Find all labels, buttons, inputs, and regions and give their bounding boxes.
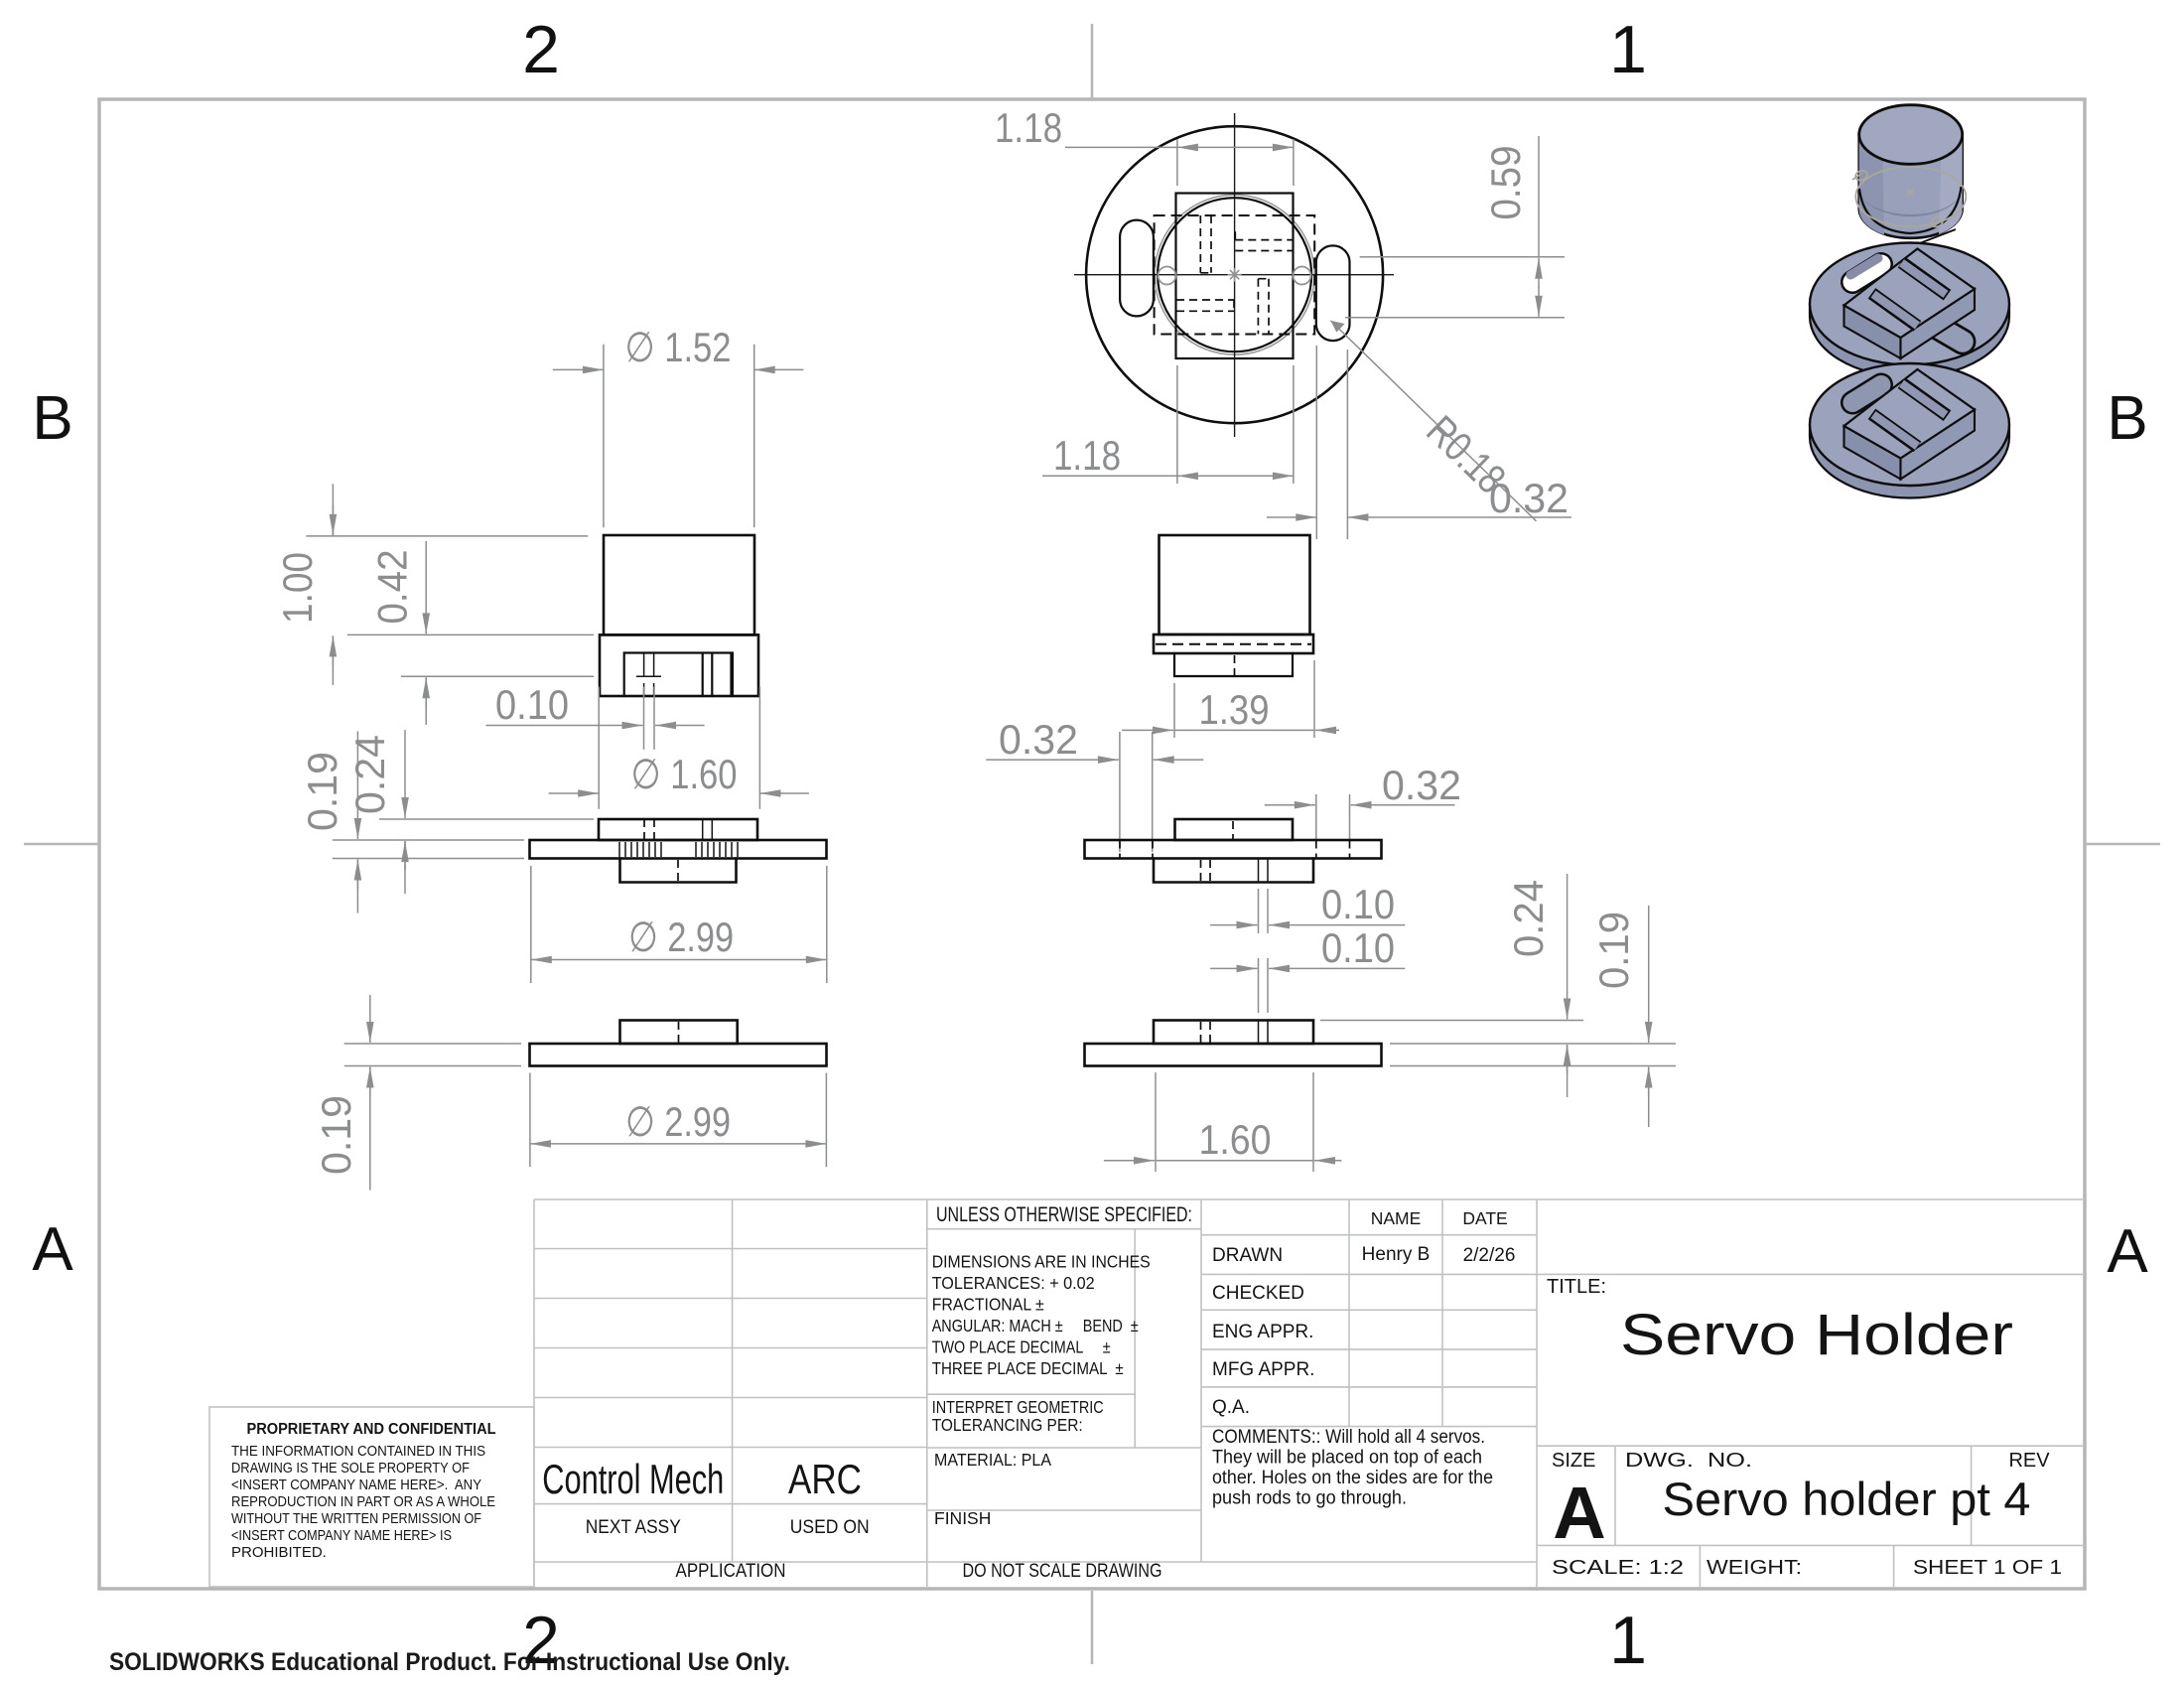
svg-text:0.10: 0.10 [1321,881,1395,927]
svg-text:COMMENTS:: Will hold all 4 ser: COMMENTS:: Will hold all 4 servos. [1212,1427,1485,1448]
svg-text:0.24: 0.24 [346,735,393,814]
svg-text:SHEET 1 OF 1: SHEET 1 OF 1 [1913,1557,2062,1579]
svg-text:MATERIAL: PLA: MATERIAL: PLA [934,1450,1051,1470]
svg-text:INTERPRET GEOMETRIC: INTERPRET GEOMETRIC [932,1397,1104,1417]
svg-text:NAME: NAME [1371,1208,1422,1228]
svg-text:1.60: 1.60 [1199,1116,1272,1163]
svg-text:WITHOUT THE WRITTEN PERMISSION: WITHOUT THE WRITTEN PERMISSION OF [231,1510,481,1527]
svg-text:A: A [32,1215,73,1284]
svg-text:Control Mech: Control Mech [542,1456,724,1502]
svg-text:TITLE:: TITLE: [1547,1276,1606,1298]
svg-text:DO NOT SCALE DRAWING: DO NOT SCALE DRAWING [963,1561,1162,1582]
svg-text:0.24: 0.24 [1505,880,1552,957]
svg-text:DRAWN: DRAWN [1212,1245,1283,1266]
svg-text:REV: REV [2008,1450,2050,1472]
svg-text:Henry B: Henry B [1362,1244,1431,1265]
svg-text:CHECKED: CHECKED [1212,1283,1304,1304]
svg-text:1: 1 [1609,12,1647,87]
svg-text:<INSERT COMPANY NAME HERE> IS: <INSERT COMPANY NAME HERE> IS [231,1527,452,1544]
svg-text:MFG APPR.: MFG APPR. [1212,1359,1314,1380]
svg-text:A: A [2107,1217,2148,1286]
svg-text:0.32: 0.32 [1382,762,1461,808]
svg-text:ARC: ARC [788,1456,862,1502]
svg-text:ENG APPR.: ENG APPR. [1212,1322,1313,1342]
svg-text:PROHIBITED.: PROHIBITED. [231,1544,327,1561]
svg-text:∅ 1.52: ∅ 1.52 [625,324,732,370]
svg-text:0.19: 0.19 [313,1095,359,1175]
svg-text:PROPRIETARY AND CONFIDENTIAL: PROPRIETARY AND CONFIDENTIAL [247,1421,496,1438]
svg-text:WEIGHT:: WEIGHT: [1706,1557,1802,1579]
svg-text:0.42: 0.42 [369,550,416,625]
svg-text:THREE PLACE DECIMAL ±: THREE PLACE DECIMAL ± [932,1358,1124,1378]
svg-text:1.00: 1.00 [274,552,321,624]
svg-text:Q.A.: Q.A. [1212,1397,1250,1418]
svg-text:1.18: 1.18 [995,104,1062,151]
svg-text:TOLERANCES: + 0.02: TOLERANCES: + 0.02 [932,1273,1095,1293]
svg-text:0.19: 0.19 [299,752,345,831]
svg-text:DRAWING IS THE SOLE PROPERTY O: DRAWING IS THE SOLE PROPERTY OF [231,1460,470,1477]
svg-text:Servo holder pt 4: Servo holder pt 4 [1663,1473,2031,1525]
svg-text:USED ON: USED ON [790,1517,870,1538]
svg-text:SOLIDWORKS Educational Product: SOLIDWORKS Educational Product. For Inst… [109,1648,790,1676]
svg-text:push rods to go through.: push rods to go through. [1212,1488,1407,1509]
svg-text:0.59: 0.59 [1482,146,1529,220]
svg-text:DIMENSIONS ARE IN INCHES: DIMENSIONS ARE IN INCHES [932,1252,1151,1272]
svg-text:∅ 2.99: ∅ 2.99 [625,1098,731,1145]
svg-text:TOLERANCING PER:: TOLERANCING PER: [932,1415,1083,1435]
svg-text:FRACTIONAL ±: FRACTIONAL ± [932,1295,1044,1315]
svg-text:0.19: 0.19 [1590,912,1637,989]
svg-text:APPLICATION: APPLICATION [676,1561,786,1582]
svg-text:<INSERT COMPANY NAME HERE>. A: <INSERT COMPANY NAME HERE>. ANY [231,1477,481,1493]
svg-text:2/2/26: 2/2/26 [1463,1245,1516,1266]
svg-text:∅ 2.99: ∅ 2.99 [628,914,734,960]
svg-text:REPRODUCTION IN PART OR AS A W: REPRODUCTION IN PART OR AS A WHOLE [231,1493,495,1510]
svg-text:1.39: 1.39 [1199,686,1270,733]
svg-text:SIZE: SIZE [1552,1450,1595,1472]
svg-text:0.32: 0.32 [999,716,1078,763]
svg-text:TWO PLACE DECIMAL ±: TWO PLACE DECIMAL ± [932,1337,1111,1357]
svg-text:2: 2 [522,12,560,87]
svg-text:NEXT ASSY: NEXT ASSY [586,1517,681,1538]
svg-text:ANGULAR: MACH ± BEND ±: ANGULAR: MACH ± BEND ± [932,1316,1139,1336]
svg-text:DWG. NO.: DWG. NO. [1625,1450,1752,1472]
svg-text:UNLESS OTHERWISE SPECIFIED:: UNLESS OTHERWISE SPECIFIED: [936,1203,1192,1226]
svg-text:0.10: 0.10 [1321,924,1395,971]
svg-text:B: B [32,384,72,453]
svg-text:other. Holes on the sides are: other. Holes on the sides are for the [1212,1468,1493,1488]
svg-text:B: B [2107,384,2147,453]
svg-text:∅ 1.60: ∅ 1.60 [631,751,738,797]
svg-text:1: 1 [1609,1603,1647,1678]
svg-text:SCALE: 1:2: SCALE: 1:2 [1552,1557,1684,1579]
svg-text:DATE: DATE [1462,1208,1507,1228]
svg-text:A: A [1553,1472,1605,1554]
svg-text:FINISH: FINISH [934,1508,991,1528]
svg-text:1.18: 1.18 [1053,432,1121,479]
svg-text:They will be placed on top of: They will be placed on top of each [1212,1448,1482,1469]
svg-text:THE INFORMATION CONTAINED IN T: THE INFORMATION CONTAINED IN THIS [231,1443,485,1460]
svg-text:0.10: 0.10 [495,681,569,728]
svg-text:Servo Holder: Servo Holder [1620,1303,2013,1367]
